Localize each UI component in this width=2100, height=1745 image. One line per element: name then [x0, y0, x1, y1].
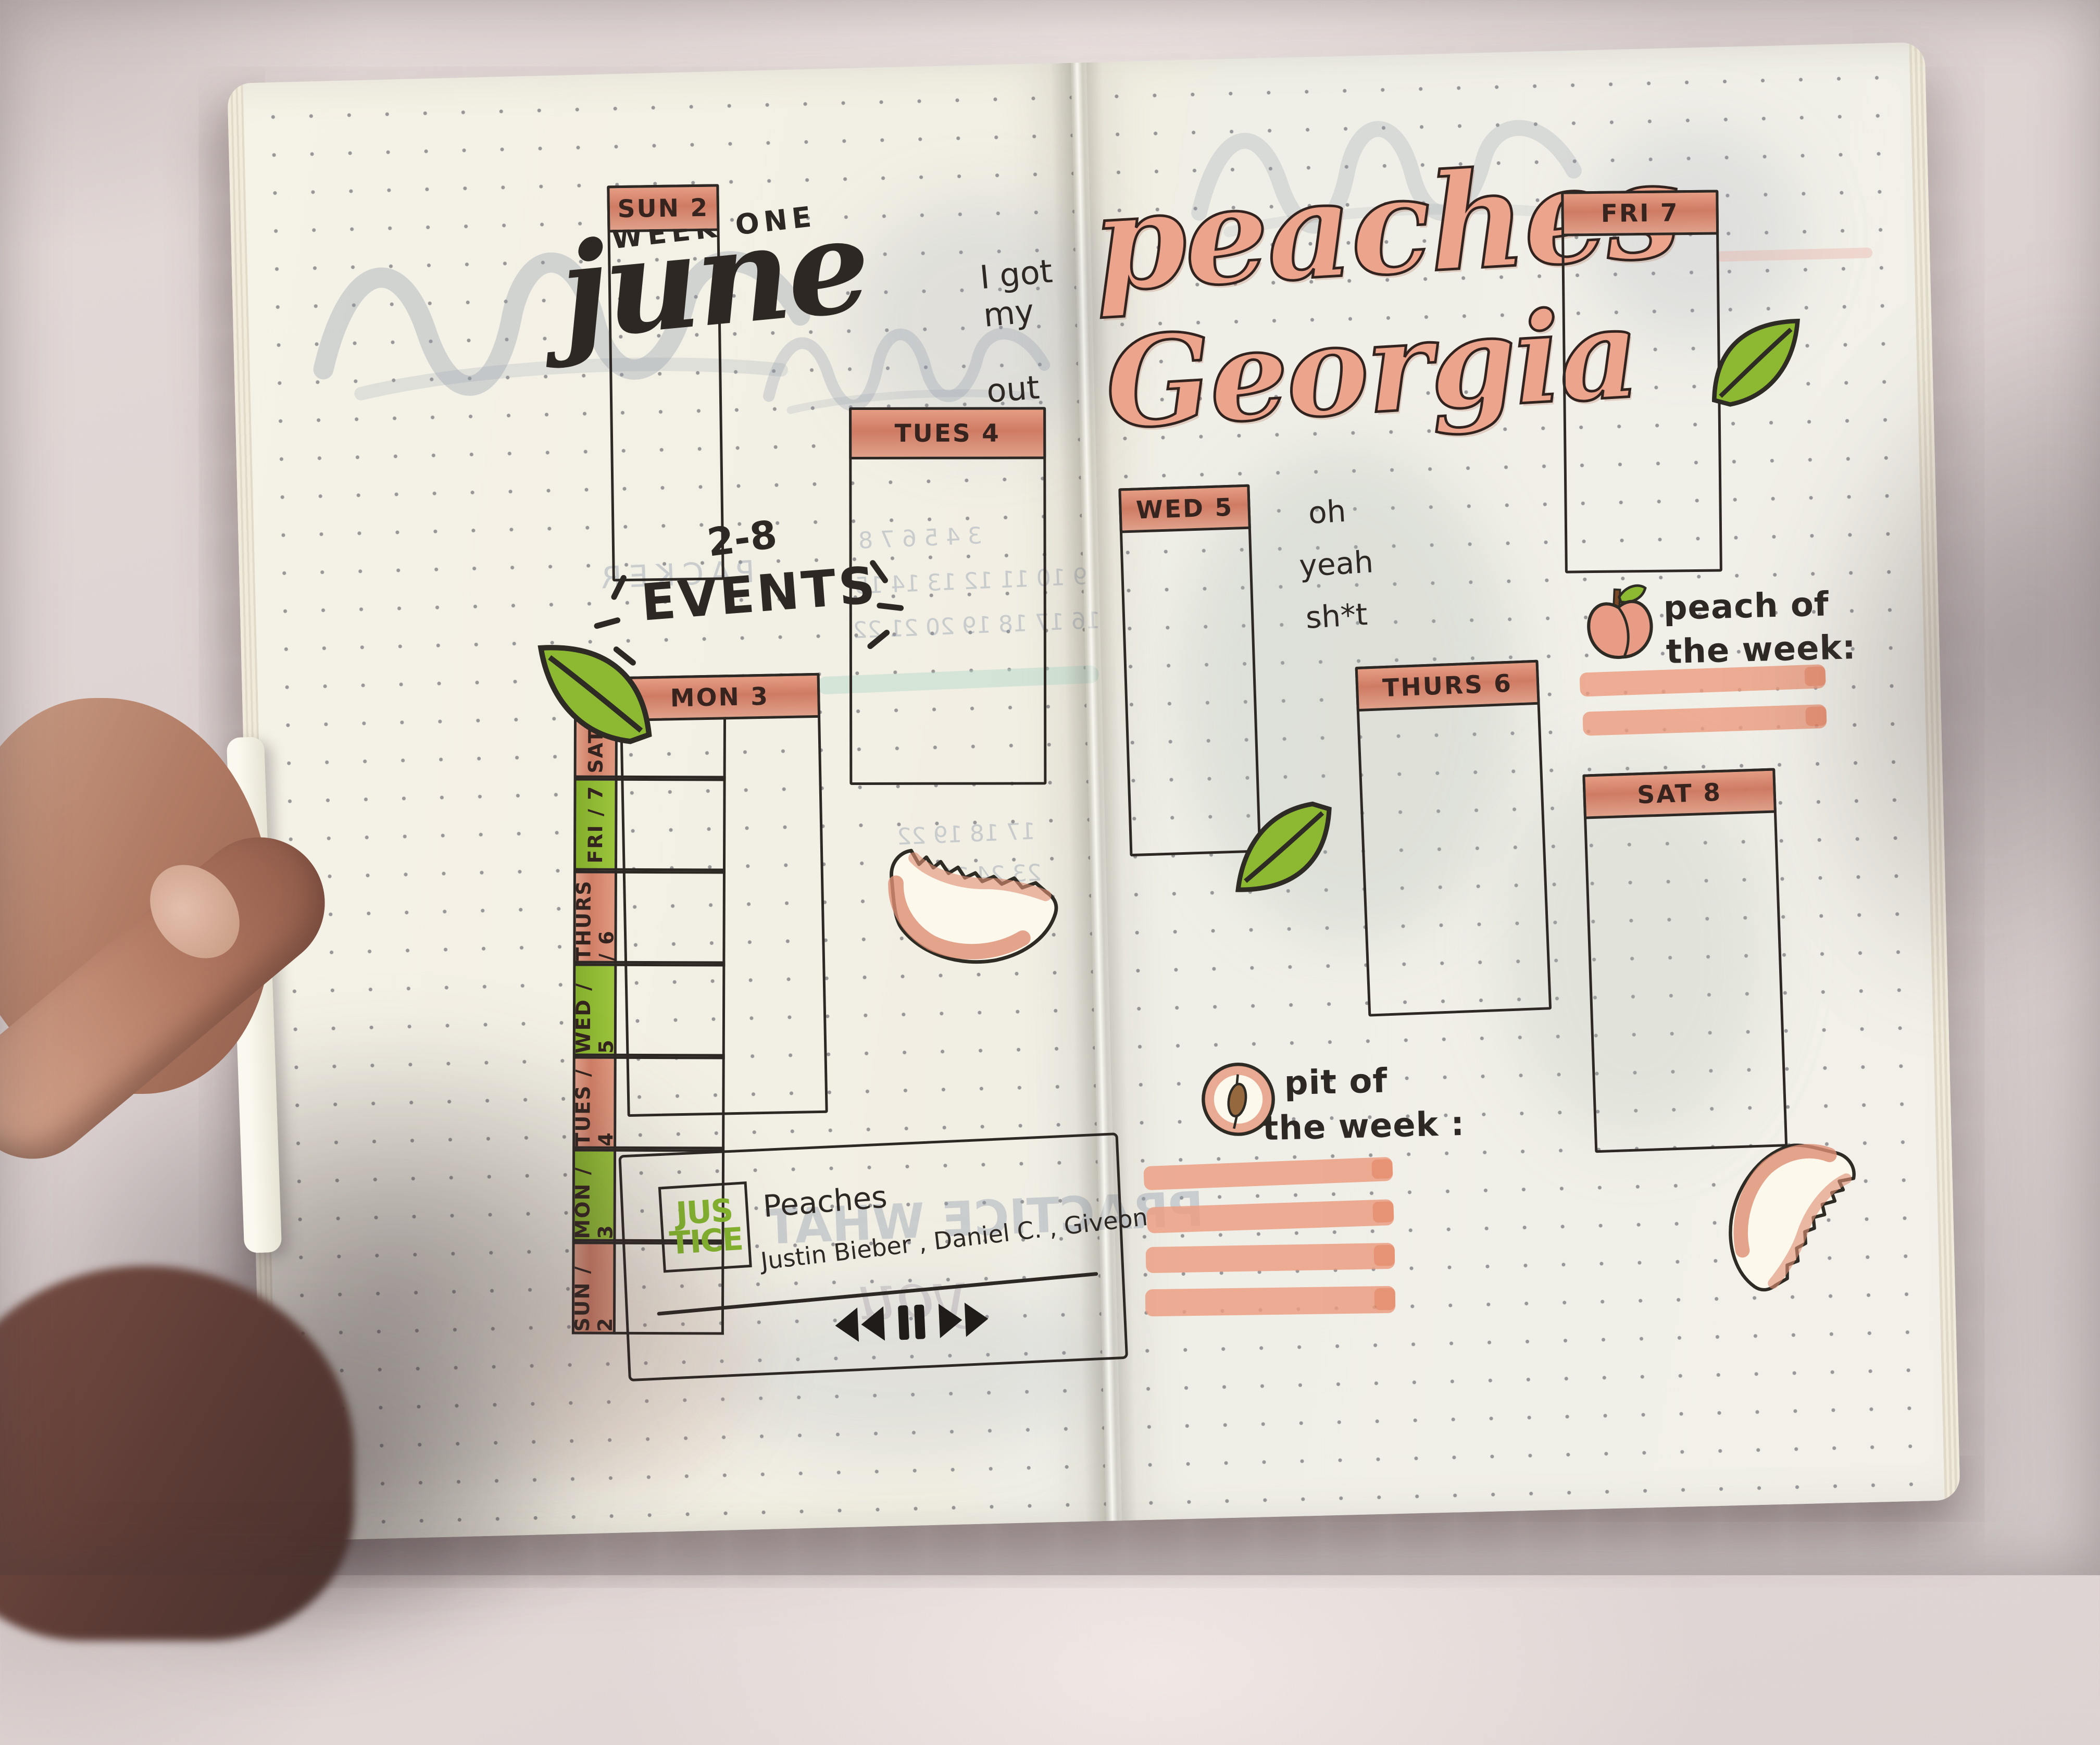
day-tab-fri7: FRI / 7: [573, 778, 618, 870]
day-tab-wed5: WED / 5: [573, 963, 617, 1056]
day-tab-label: FRI / 7: [584, 785, 607, 863]
day-tab-mon3: MON / 3: [572, 1149, 616, 1241]
daybox-header: SAT 8: [1582, 768, 1777, 819]
peach-icon: [1581, 580, 1658, 667]
peach-slice-icon: [873, 842, 1073, 993]
daybox-label: THURS 6: [1382, 669, 1513, 703]
daybox-label: WED 5: [1135, 493, 1234, 525]
day-tab-label: SUN / 2: [571, 1244, 617, 1331]
day-tab-sun2: SUN / 2: [572, 1241, 616, 1334]
peach-of-week-heading: the week:: [1666, 628, 1857, 671]
music-player-widget: JUS TICE Peaches Justin Bieber , Daniel …: [618, 1132, 1128, 1381]
daybox-sun-2: SUN 2: [607, 184, 724, 581]
handwritten-note: sh*t: [1305, 596, 1369, 635]
daybox-label: FRI 7: [1601, 198, 1679, 228]
right-page: peaches Georgia oh yeah sh*t WED 5 FRI 7…: [1086, 42, 1945, 1520]
journal-spread: PACKER 3 4 5 6 7 8 9 10 11 12 13 14 15 1…: [227, 42, 1960, 1542]
day-tab-label: THURS / 6: [572, 873, 618, 961]
highlight-line: [1145, 1286, 1396, 1317]
leaf-icon: [1231, 791, 1336, 905]
pit-of-week-heading: the week :: [1262, 1105, 1465, 1148]
daybox-header: TUES 4: [849, 407, 1046, 459]
rewind-icon: [834, 1306, 885, 1343]
page-title-word: Georgia: [1102, 281, 1642, 457]
daybox-header: SUN 2: [607, 184, 719, 232]
day-tab-label: MON / 3: [571, 1151, 618, 1239]
pause-icon: [898, 1304, 926, 1340]
leaf-icon: [532, 618, 659, 766]
left-page: PACKER 3 4 5 6 7 8 9 10 11 12 13 14 15 1…: [243, 63, 1106, 1541]
daybox-wed-5: WED 5: [1118, 484, 1261, 857]
album-art-text: TICE: [669, 1225, 743, 1258]
day-tab-tues4: TUES / 4: [572, 1056, 617, 1149]
handwritten-note: I got my: [978, 250, 1080, 334]
album-art: JUS TICE: [658, 1181, 752, 1273]
daybox-tues-4: TUES 4: [849, 407, 1046, 785]
handwritten-note: oh: [1307, 493, 1347, 531]
daybox-label: MON 3: [670, 682, 769, 713]
day-tab-label: TUES / 4: [571, 1058, 618, 1146]
handwritten-note: yeah: [1298, 544, 1374, 583]
daybox-label: TUES 4: [895, 419, 1001, 447]
daybox-fri-7: FRI 7: [1561, 190, 1722, 573]
peach-pit-icon: [1193, 1054, 1283, 1144]
daybox-sat-8: SAT 8: [1582, 768, 1788, 1153]
song-title: Peaches: [761, 1179, 888, 1224]
leaf-icon: [1705, 272, 1807, 451]
highlight-line: [1582, 704, 1827, 736]
highlight-line: [1146, 1243, 1395, 1273]
day-tab-thurs6: THURS / 6: [573, 870, 617, 963]
fast-forward-icon: [939, 1302, 989, 1338]
daybox-label: SUN 2: [617, 193, 709, 223]
day-tab-label: WED / 5: [572, 966, 618, 1053]
daybox-header: WED 5: [1118, 484, 1251, 533]
daybox-header: THURS 6: [1355, 660, 1540, 712]
player-controls: [830, 1297, 993, 1348]
photo-scene: PACKER 3 4 5 6 7 8 9 10 11 12 13 14 15 1…: [0, 0, 2100, 1575]
pit-of-week-heading: pit of: [1284, 1062, 1388, 1103]
highlight-line: [1143, 1157, 1393, 1190]
daybox-thurs-6: THURS 6: [1355, 660, 1552, 1017]
peach-of-week-heading: peach of: [1663, 585, 1830, 628]
daybox-label: SAT 8: [1636, 778, 1722, 809]
daybox-header: FRI 7: [1561, 190, 1719, 236]
